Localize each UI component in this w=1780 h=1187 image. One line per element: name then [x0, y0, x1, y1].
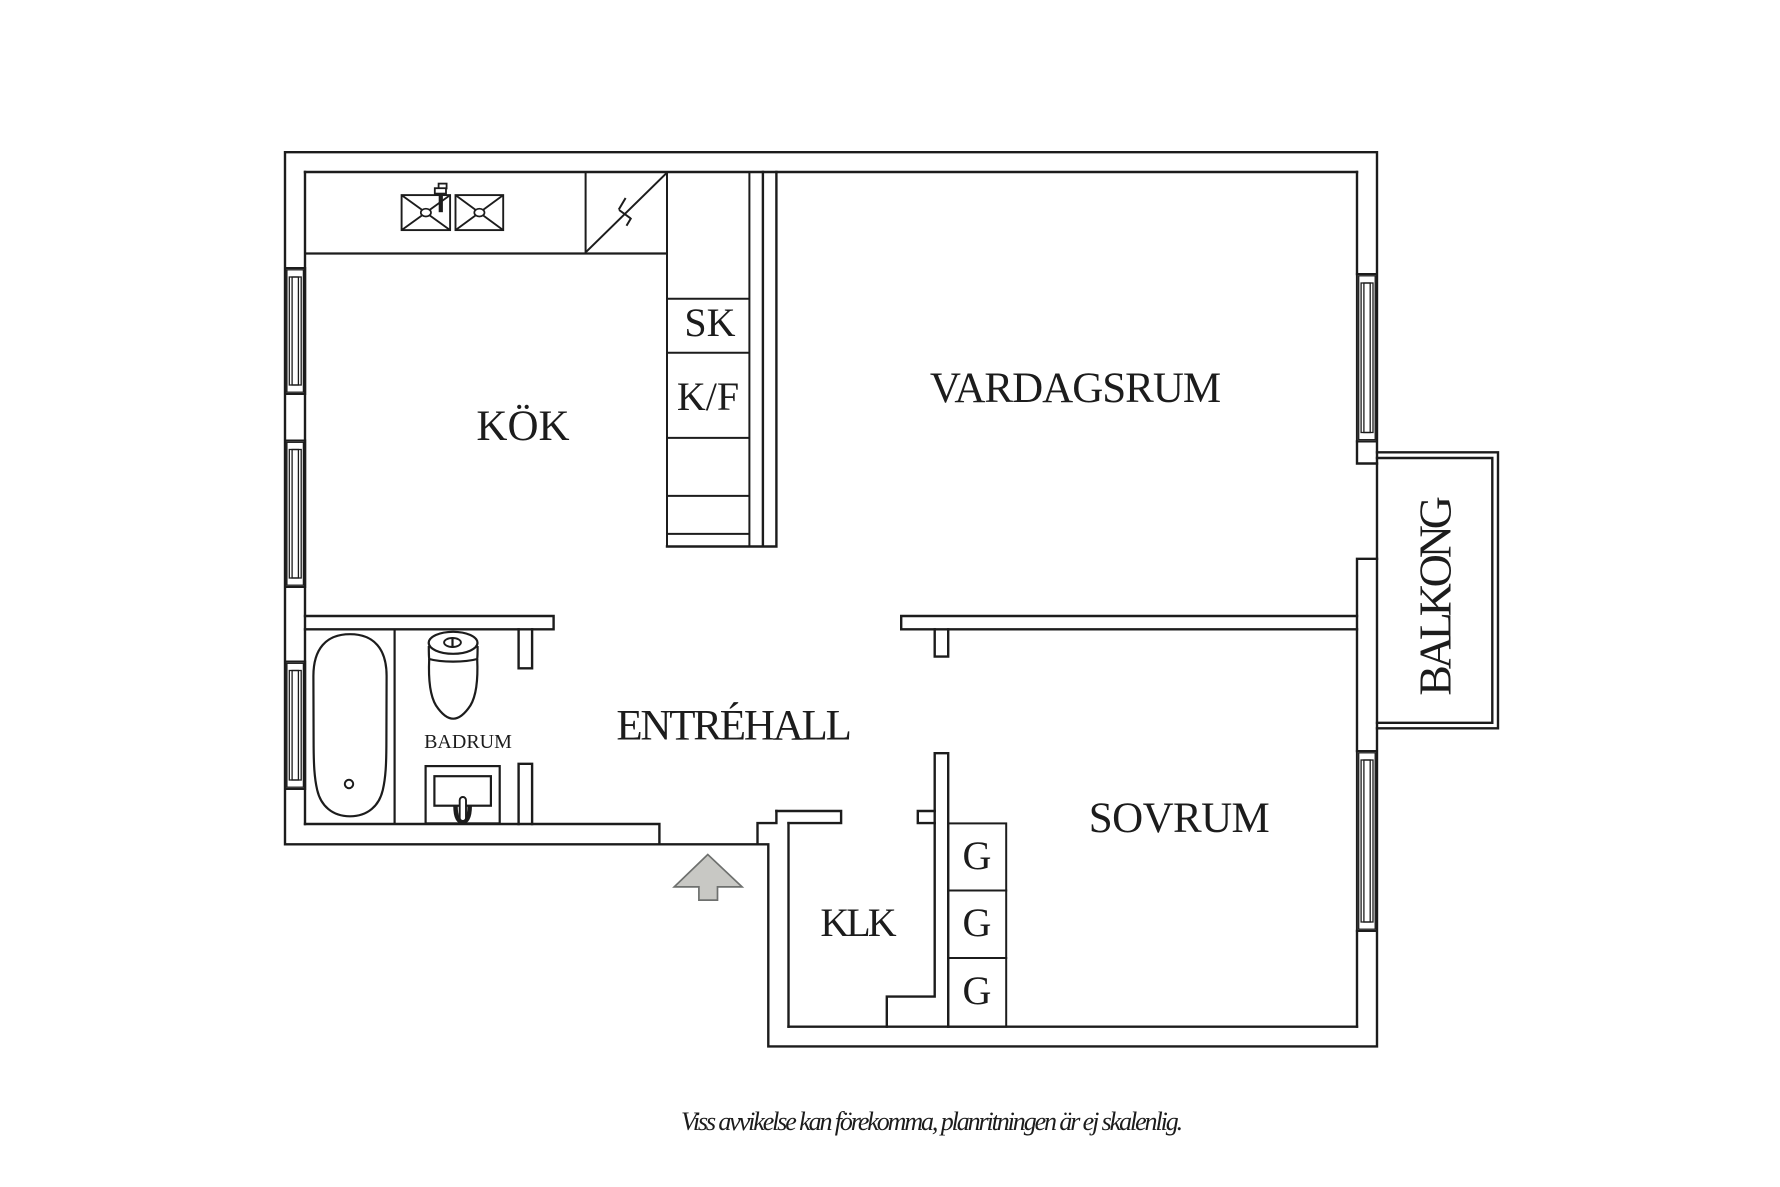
- svg-text:SK: SK: [684, 300, 735, 345]
- svg-text:G: G: [963, 900, 992, 945]
- svg-text:KÖK: KÖK: [476, 403, 569, 450]
- svg-text:ENTRÉHALL: ENTRÉHALL: [616, 703, 849, 750]
- svg-text:BALKONG: BALKONG: [1410, 497, 1461, 695]
- svg-text:Viss avvikelse kan förekomma,: Viss avvikelse kan förekomma, planritnin…: [681, 1107, 1182, 1136]
- svg-text:SOVRUM: SOVRUM: [1089, 795, 1269, 842]
- svg-text:BADRUM: BADRUM: [424, 731, 512, 753]
- svg-text:G: G: [963, 833, 992, 878]
- svg-text:KLK: KLK: [820, 900, 896, 945]
- svg-text:G: G: [963, 968, 992, 1013]
- svg-text:VARDAGSRUM: VARDAGSRUM: [930, 365, 1220, 412]
- svg-text:K/F: K/F: [677, 374, 739, 419]
